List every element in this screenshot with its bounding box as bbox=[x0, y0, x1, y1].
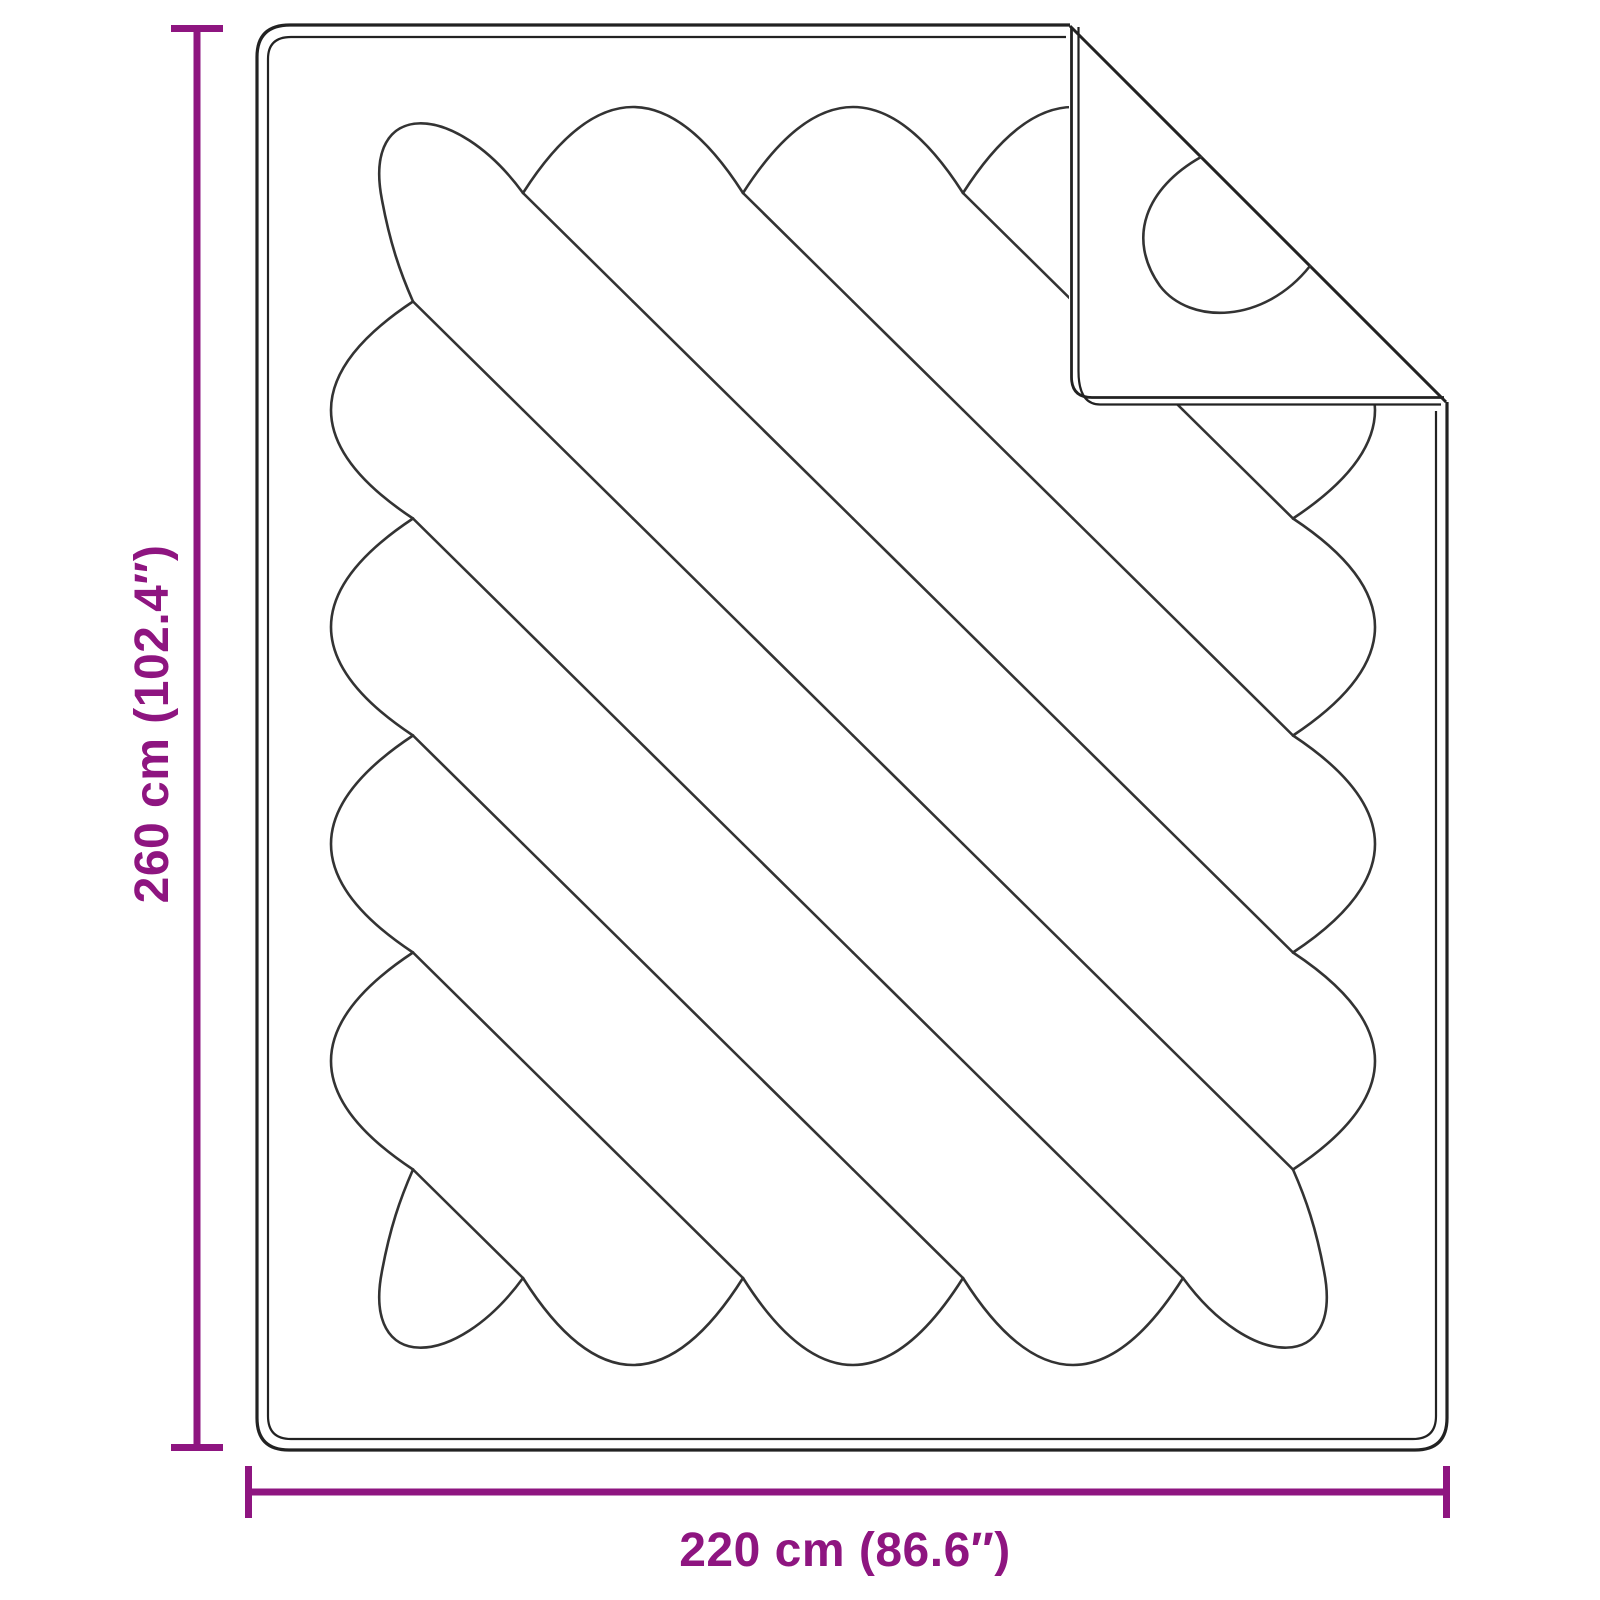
width-dimension-cap-left bbox=[245, 1466, 252, 1518]
width-dimension-cap-right bbox=[1443, 1466, 1450, 1518]
height-dimension-line bbox=[194, 28, 201, 1448]
blanket-diagram: 260 cm (102.4″) 220 cm (86.6″) bbox=[0, 0, 1600, 1600]
width-dimension-line bbox=[248, 1489, 1447, 1496]
width-dimension-label: 220 cm (86.6″) bbox=[679, 1524, 1011, 1577]
height-dimension-label: 260 cm (102.4″) bbox=[126, 545, 179, 904]
height-dimension-cap-bottom bbox=[171, 1444, 223, 1451]
height-dimension-cap-top bbox=[171, 25, 223, 32]
